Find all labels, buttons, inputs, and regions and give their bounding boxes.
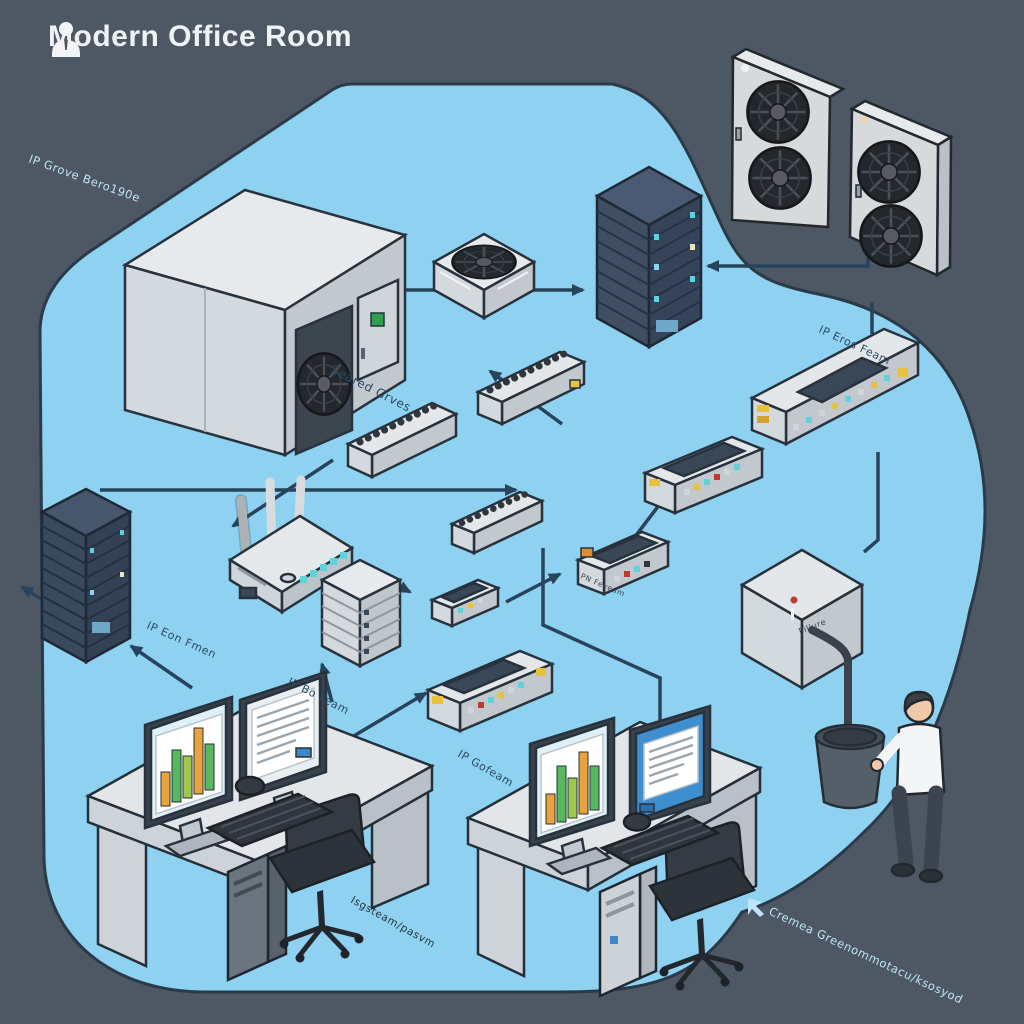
server-tower-center [597,167,701,347]
doc-button-right [640,804,654,812]
controller-orange-led [581,548,593,557]
scene: Modern Office Room [0,0,1024,1024]
server-tower-left [42,489,130,662]
doc-button [296,748,311,757]
page-header: Modern Office Room [48,20,352,54]
person-icon [48,20,84,58]
mouse-right [624,814,650,831]
nas-tower [322,560,400,666]
storage-box-led [791,597,798,604]
mouse-left [236,777,264,795]
page-title: Modern Office Room [48,20,352,54]
cabinet-green-badge [371,313,384,326]
